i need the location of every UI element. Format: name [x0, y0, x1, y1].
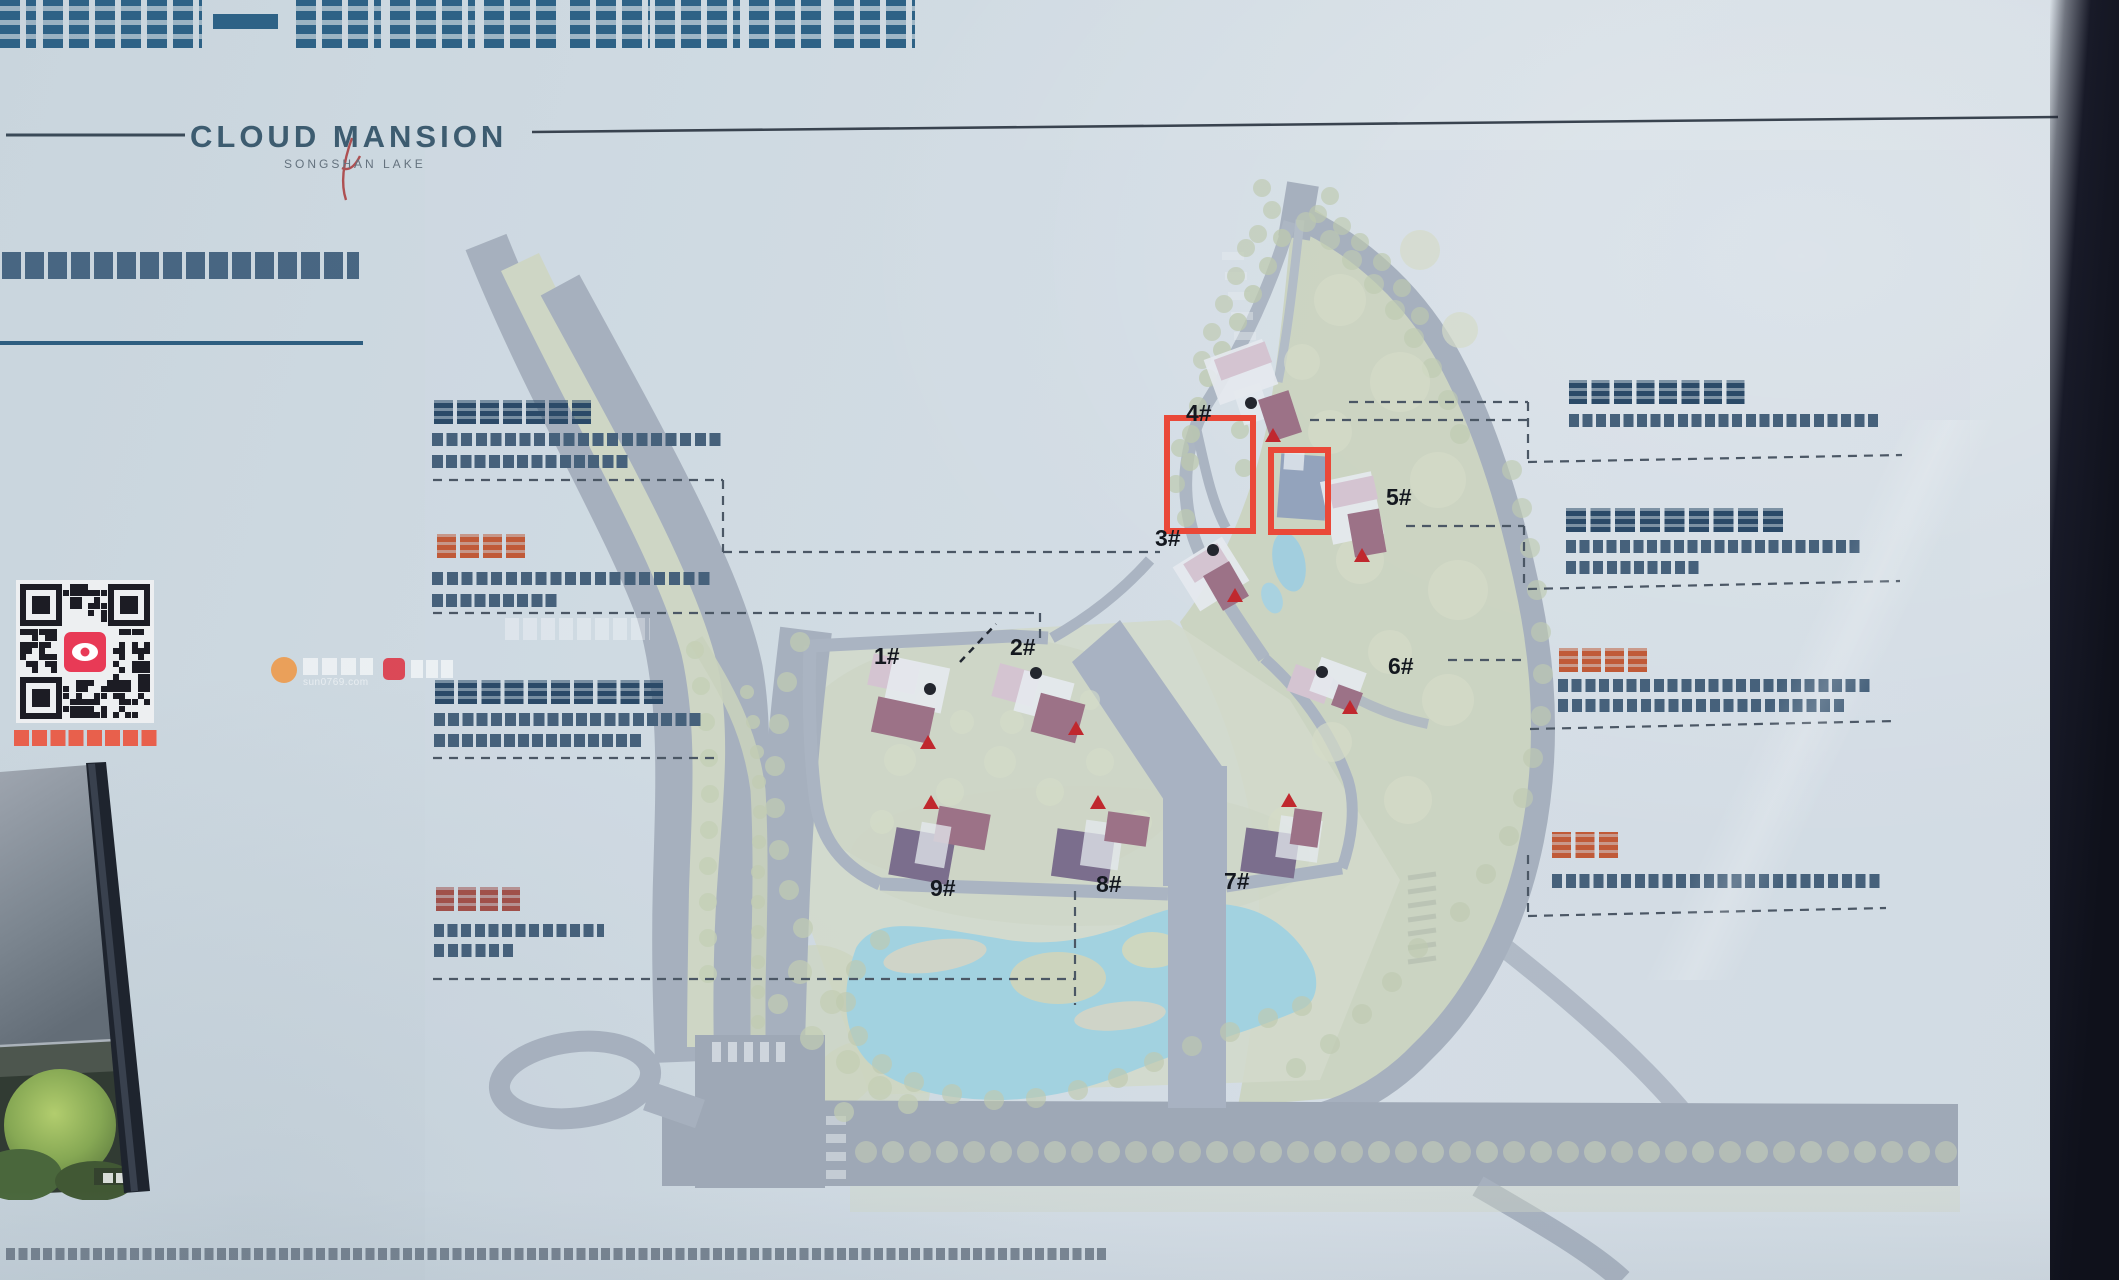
- svg-text:7#: 7#: [1224, 868, 1250, 894]
- svg-text:5#: 5#: [1386, 484, 1412, 510]
- svg-text:6#: 6#: [1388, 653, 1414, 679]
- svg-text:1#: 1#: [874, 643, 900, 669]
- svg-text:3#: 3#: [1155, 525, 1181, 551]
- svg-text:9#: 9#: [930, 875, 956, 901]
- svg-text:8#: 8#: [1096, 871, 1122, 897]
- svg-text:2#: 2#: [1010, 634, 1036, 660]
- svg-text:4#: 4#: [1186, 400, 1212, 426]
